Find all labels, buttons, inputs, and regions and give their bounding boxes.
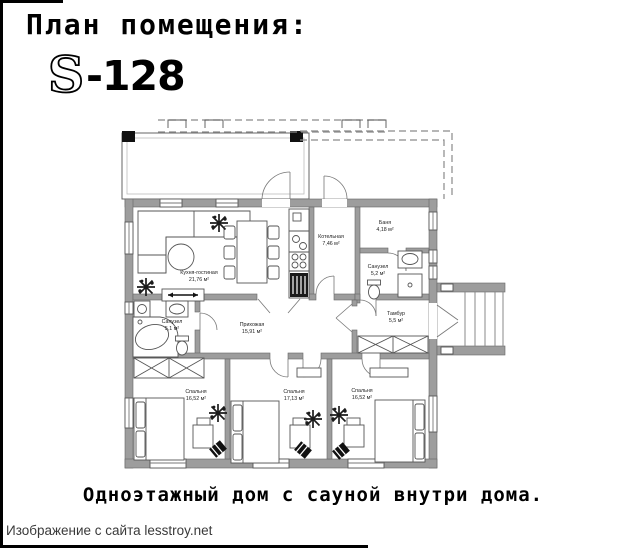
plant-icon (330, 406, 348, 424)
terrace (122, 131, 309, 199)
room-label-hall: Прихожая 15,91 м² (240, 322, 265, 335)
room-label-sauna: Баня 4,18 м² (376, 220, 393, 233)
plant-icon (137, 278, 155, 296)
wardrobe-bedroom1 (134, 358, 204, 378)
room-label-kitchen-living: Кухня-гостиная 21,76 м² (180, 270, 218, 283)
room-label-bedroom1: Спальня 16,52 м² (185, 389, 206, 402)
entrance-porch (429, 283, 505, 355)
svg-text:Санузел: Санузел (162, 319, 183, 325)
room-label-wc1: Санузел 5,1 м² (162, 319, 183, 332)
canopy-outline (300, 131, 452, 199)
room-label-wc2: Санузел 5,2 м² (368, 264, 389, 277)
svg-text:Тамбур: Тамбур (387, 311, 405, 317)
wardrobe-tambour (358, 336, 428, 353)
caption: Одноэтажный дом с сауной внутри дома. (0, 484, 626, 506)
bedroom2-furniture (231, 368, 322, 463)
bedroom1-furniture (134, 398, 227, 460)
plant-icon (210, 214, 228, 232)
svg-text:Спальня: Спальня (185, 389, 206, 395)
svg-text:Прихожая: Прихожая (240, 322, 265, 328)
svg-text:4,18 м²: 4,18 м² (376, 227, 393, 233)
svg-text:16,52 м²: 16,52 м² (186, 396, 206, 402)
svg-text:Котельная: Котельная (318, 234, 344, 240)
washing-machine (134, 301, 150, 317)
plant-icon (209, 404, 227, 422)
room-label-bedroom3: Спальня 16,52 м² (351, 388, 372, 401)
attribution: Изображение с сайта lesstroy.net (6, 523, 212, 538)
pergola-outline (158, 120, 386, 132)
room-label-boiler: Котельная 7,46 м² (318, 234, 344, 247)
svg-text:7,46 м²: 7,46 м² (322, 241, 339, 247)
porch-steps (465, 292, 503, 346)
page: План помещения: S -128 (0, 0, 626, 548)
bedroom3-furniture (330, 368, 425, 462)
room-label-tambour: Тамбур 5,5 м² (387, 311, 405, 324)
svg-text:Спальня: Спальня (283, 389, 304, 395)
svg-text:5,5 м²: 5,5 м² (389, 318, 403, 324)
svg-text:5,2 м²: 5,2 м² (371, 271, 385, 277)
plant-icon (304, 410, 322, 428)
kitchen-counter (289, 209, 309, 298)
room-label-bedroom2: Спальня 17,13 м² (283, 389, 304, 402)
terrace-post (122, 131, 135, 142)
svg-text:16,52 м²: 16,52 м² (352, 395, 372, 401)
living-room-furniture (137, 211, 279, 301)
shower (398, 274, 422, 297)
svg-text:17,13 м²: 17,13 м² (284, 396, 304, 402)
svg-text:Кухня-гостиная: Кухня-гостиная (180, 270, 218, 276)
svg-text:21,76 м²: 21,76 м² (189, 277, 209, 283)
fridge (290, 273, 308, 297)
svg-text:Спальня: Спальня (351, 388, 372, 394)
dining-table (237, 221, 267, 283)
round-table (168, 244, 194, 270)
bathroom1-fixtures (132, 301, 188, 357)
floor-plan: Кухня-гостиная 21,76 м² Котельная 7,46 м… (0, 0, 626, 548)
svg-text:Баня: Баня (379, 220, 391, 226)
svg-text:5,1 м²: 5,1 м² (165, 326, 179, 332)
svg-text:Санузел: Санузел (368, 264, 389, 270)
toilet-icon (176, 336, 189, 355)
svg-text:15,91 м²: 15,91 м² (242, 329, 262, 335)
toilet-icon (368, 280, 381, 299)
desk (193, 425, 213, 448)
desk (344, 425, 364, 447)
